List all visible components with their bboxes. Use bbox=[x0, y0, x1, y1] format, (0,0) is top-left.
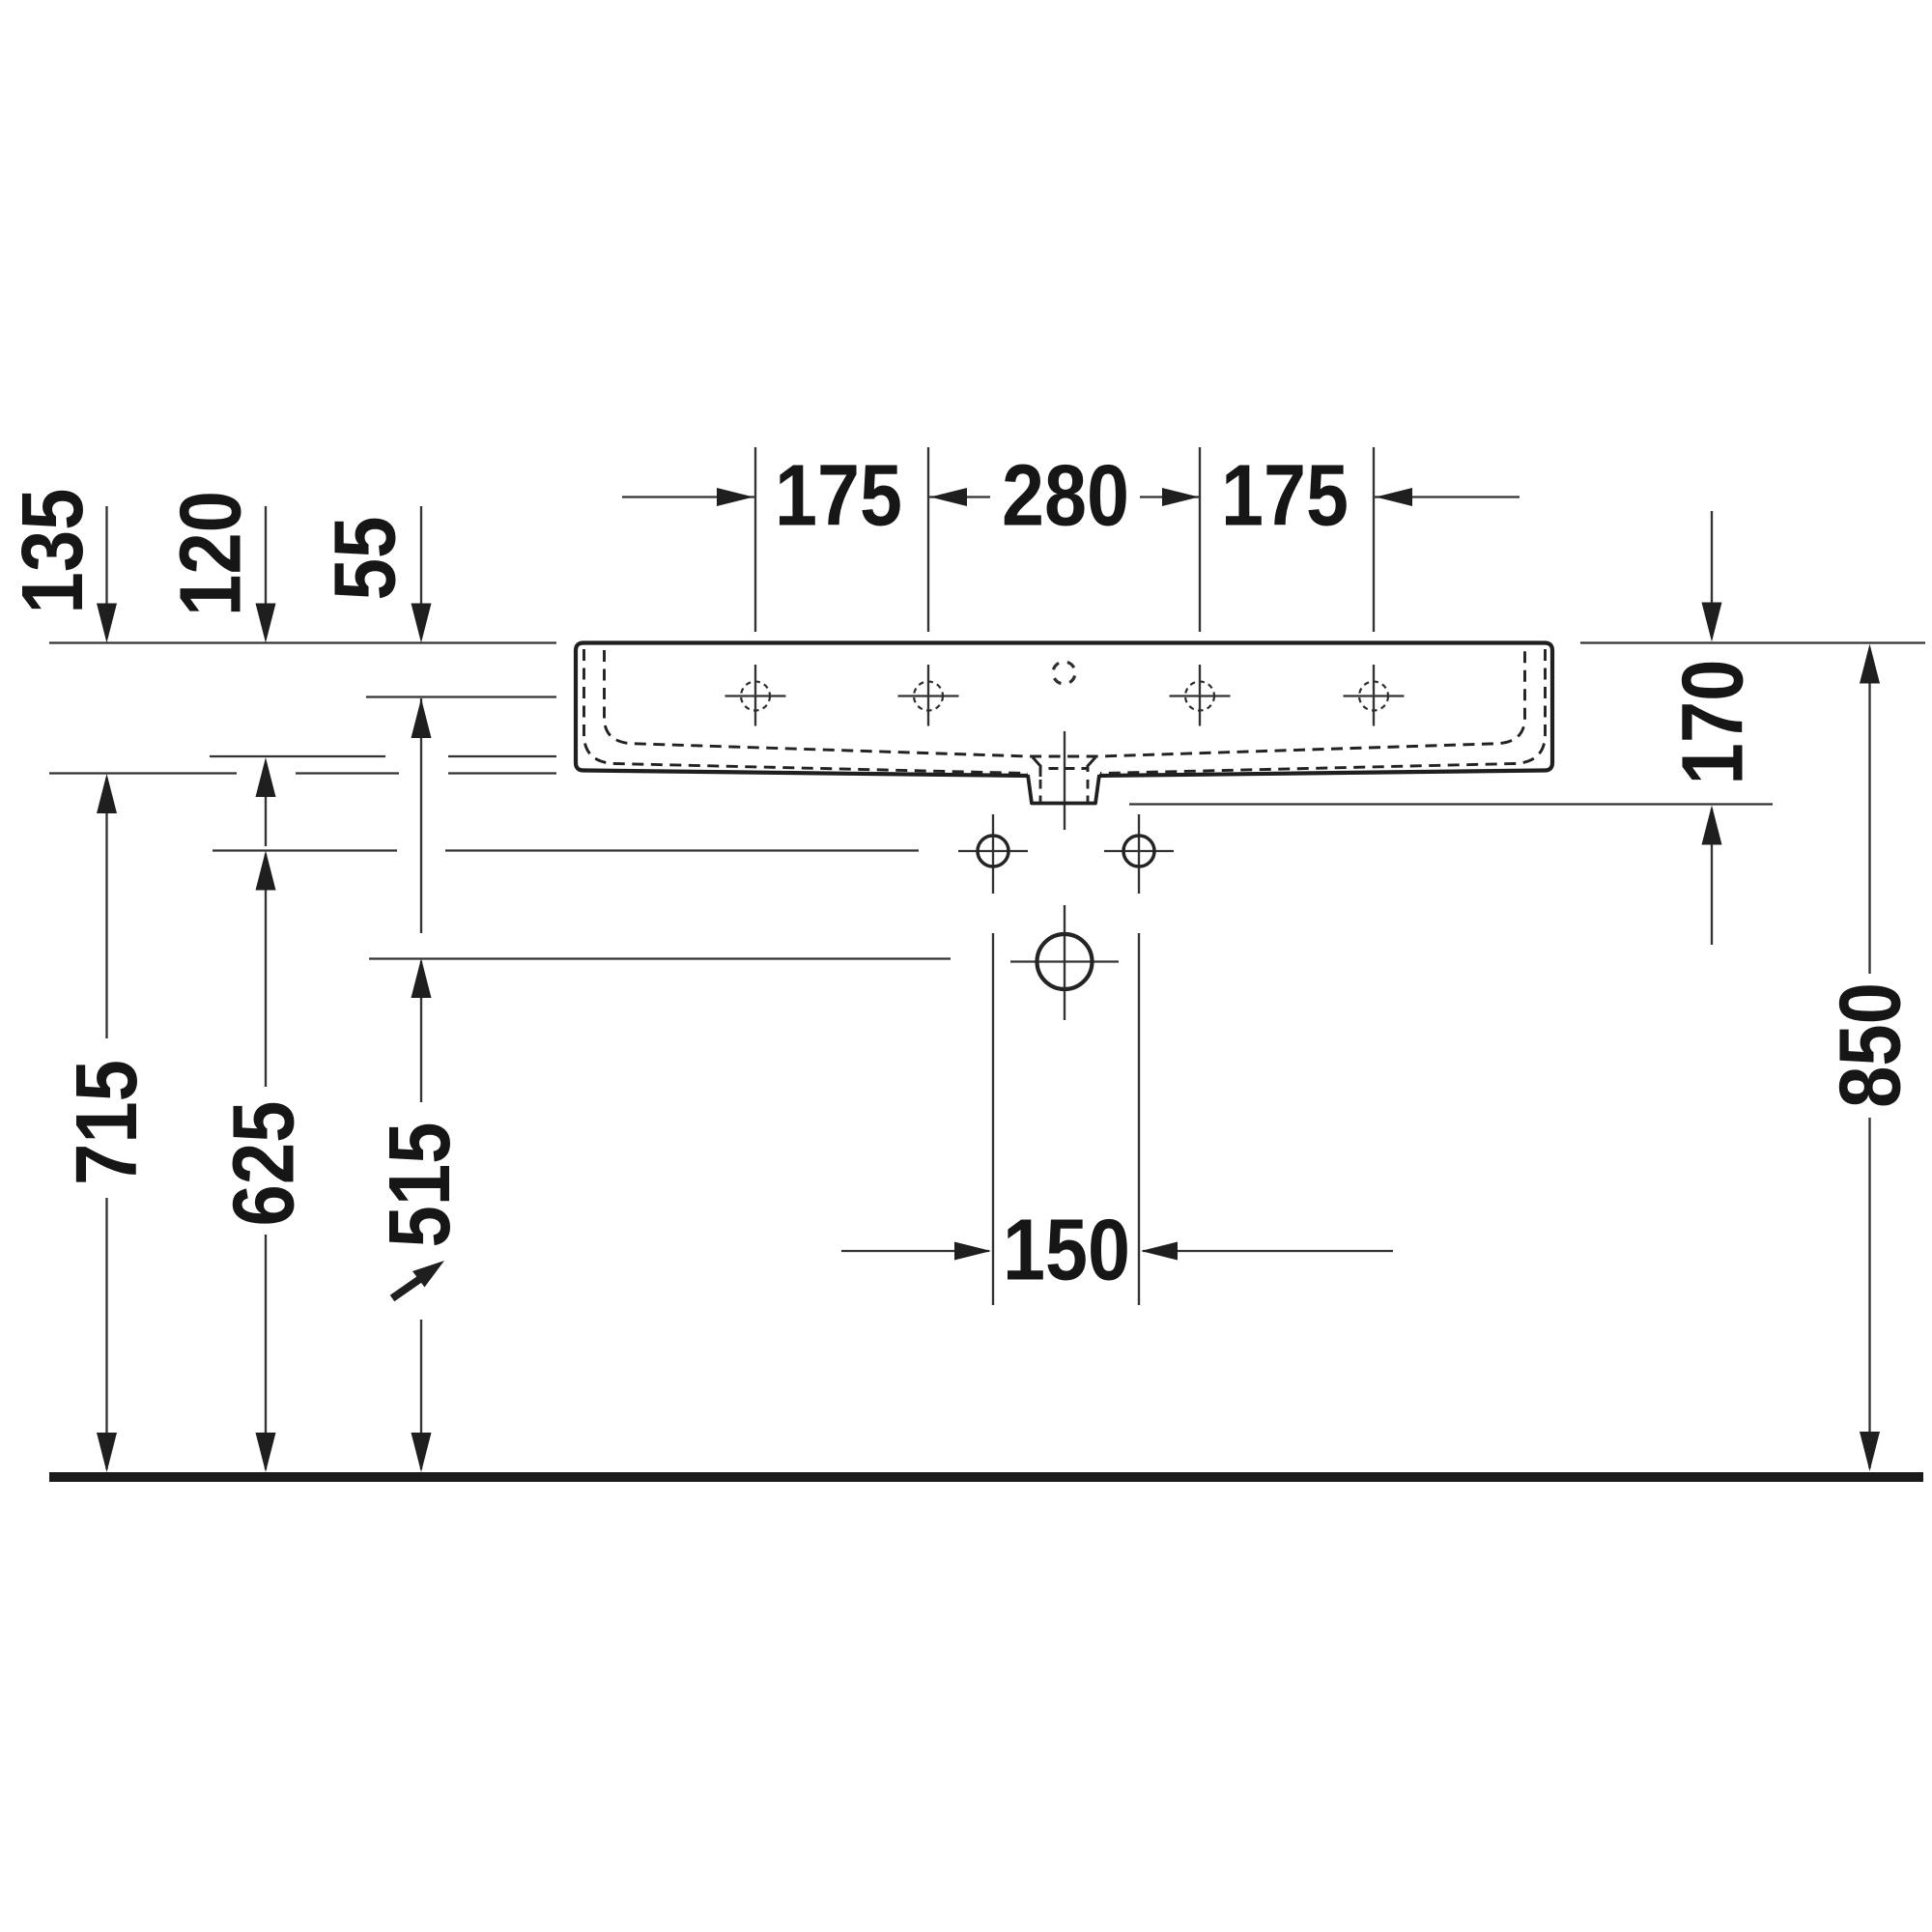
svg-text:280: 280 bbox=[1002, 448, 1129, 545]
svg-text:175: 175 bbox=[775, 448, 902, 545]
svg-text:170: 170 bbox=[1665, 660, 1762, 785]
svg-text:120: 120 bbox=[163, 491, 260, 616]
svg-text:135: 135 bbox=[5, 489, 101, 614]
svg-text:850: 850 bbox=[1823, 982, 1919, 1108]
svg-text:515: 515 bbox=[372, 1122, 469, 1248]
svg-text:715: 715 bbox=[59, 1060, 156, 1185]
svg-text:175: 175 bbox=[1221, 448, 1349, 545]
svg-text:150: 150 bbox=[1003, 1203, 1130, 1299]
svg-text:625: 625 bbox=[216, 1101, 313, 1227]
svg-text:55: 55 bbox=[318, 517, 414, 601]
